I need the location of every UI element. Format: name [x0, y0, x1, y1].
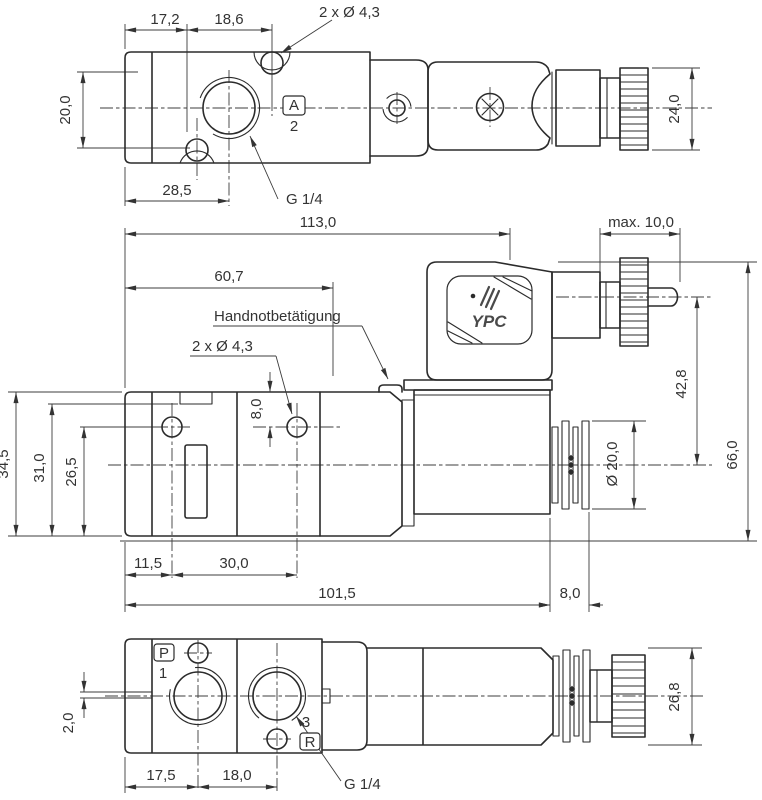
armature-plate — [402, 400, 414, 526]
dim-text-34-5: 34,5 — [0, 449, 12, 478]
knurl-lines-front — [621, 265, 647, 342]
dim-text-8-0-end: 8,0 — [560, 585, 581, 602]
dim-text-max-10: max. 10,0 — [608, 214, 674, 231]
port-a-number: 2 — [290, 118, 298, 135]
clip-diamonds-bottom — [569, 686, 575, 706]
valve-drawing-svg: 17,2 18,6 2 x Ø 4,3 20,0 28,5 A 2 G 1/4 … — [0, 0, 762, 800]
knurl-lines-top — [621, 75, 647, 145]
leader-thread-top — [250, 136, 278, 199]
callout-thread-bottom: G 1/4 — [344, 776, 381, 793]
dim-text-60-7: 60,7 — [214, 268, 243, 285]
dim-text-dia-20: Ø 20,0 — [604, 441, 621, 486]
dim-text-30-0: 30,0 — [219, 555, 248, 572]
connector-flange — [404, 380, 552, 390]
dim-text-20-0: 20,0 — [57, 95, 74, 124]
front-view: YPC 113,0 max. 10,0 — [0, 214, 757, 612]
dim-text-31-0: 31,0 — [31, 453, 48, 482]
top-notch — [180, 392, 212, 404]
leader-holes-top — [281, 20, 332, 53]
valve-body-top-outline — [125, 52, 370, 163]
port-p-letter: P — [159, 645, 169, 662]
dim-text-24-0: 24,0 — [666, 94, 683, 123]
dim-text-17-5: 17,5 — [146, 767, 175, 784]
knurl-lines-bottom — [613, 662, 644, 733]
dim-text-101-5: 101,5 — [318, 585, 356, 602]
callout-holes-front: 2 x Ø 4,3 — [192, 338, 253, 355]
leader-holes-front — [190, 356, 292, 414]
label-slot — [185, 445, 207, 518]
top-view: 17,2 18,6 2 x Ø 4,3 20,0 28,5 A 2 G 1/4 … — [57, 4, 712, 208]
callout-holes-top: 2 x Ø 4,3 — [319, 4, 380, 21]
dim-text-17-2: 17,2 — [150, 11, 179, 28]
dim-text-113-0: 113,0 — [300, 214, 336, 231]
logo-dot — [471, 294, 476, 299]
dim-text-18-0: 18,0 — [222, 767, 251, 784]
technical-drawing-page: 17,2 18,6 2 x Ø 4,3 20,0 28,5 A 2 G 1/4 … — [0, 0, 762, 800]
dim-text-11-5: 11,5 — [134, 555, 162, 572]
gland-body-front — [552, 272, 600, 338]
dim-text-26-5: 26,5 — [63, 457, 80, 486]
gland-neck-front — [600, 282, 620, 328]
dim-text-8-0-hole: 8,0 — [248, 399, 265, 420]
dim-text-28-5: 28,5 — [162, 182, 191, 199]
dim-text-26-8: 26,8 — [666, 682, 683, 711]
bottom-view: P 1 2,0 3 R 17,5 18,0 G 1/4 26,8 — [60, 639, 706, 793]
brand-logo-text: YPC — [472, 312, 508, 331]
solenoid-bottom-outline — [367, 648, 553, 745]
dim-text-2-0: 2,0 — [60, 713, 77, 734]
manual-override-button — [379, 385, 402, 392]
dim-text-42-8: 42,8 — [673, 369, 690, 398]
dim-text-66-0: 66,0 — [724, 440, 741, 469]
clip-diamonds-front — [568, 455, 574, 475]
knurled-nut-front — [620, 258, 648, 346]
adapter-front-outline — [320, 392, 402, 536]
port-r-number: 3 — [302, 714, 310, 731]
dim-text-18-6: 18,6 — [214, 11, 243, 28]
port-r-letter: R — [305, 734, 316, 751]
label-manual-override: Handnotbetätigung — [214, 308, 341, 325]
slot-lines — [125, 692, 152, 698]
coil-body — [414, 390, 550, 514]
callout-thread-top: G 1/4 — [286, 191, 323, 208]
hole-boss-arcs — [180, 52, 290, 163]
port-a-letter: A — [289, 97, 299, 114]
port-p-number: 1 — [159, 665, 167, 682]
valve-body-front-outline — [125, 392, 320, 536]
